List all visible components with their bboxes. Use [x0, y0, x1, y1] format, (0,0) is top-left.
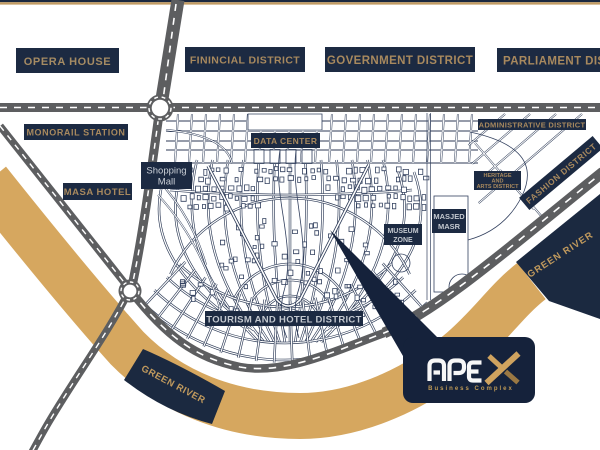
- svg-text:MASJED: MASJED: [433, 212, 465, 221]
- svg-text:Shopping: Shopping: [146, 166, 186, 177]
- svg-text:MONORAIL STATION: MONORAIL STATION: [26, 128, 125, 138]
- svg-text:FININCIAL DISTRICT: FININCIAL DISTRICT: [190, 55, 300, 67]
- svg-text:MUSEUM: MUSEUM: [387, 228, 418, 235]
- svg-text:ARTS DISTRICT: ARTS DISTRICT: [477, 184, 520, 190]
- svg-text:Mall: Mall: [158, 177, 175, 188]
- svg-text:GOVERNMENT DISTRICT: GOVERNMENT DISTRICT: [327, 55, 473, 67]
- svg-text:MASA HOTEL: MASA HOTEL: [64, 187, 131, 198]
- svg-text:DATA CENTER: DATA CENTER: [254, 136, 318, 146]
- svg-text:PARLIAMENT DISTRICT: PARLIAMENT DISTRICT: [503, 56, 600, 68]
- svg-text:Business Complex: Business Complex: [428, 386, 514, 392]
- svg-text:ZONE: ZONE: [393, 237, 413, 244]
- svg-text:MASR: MASR: [438, 222, 461, 231]
- svg-text:TOURISM AND HOTEL DISTRICT: TOURISM AND HOTEL DISTRICT: [206, 315, 361, 326]
- svg-text:OPERA HOUSE: OPERA HOUSE: [24, 56, 111, 68]
- svg-text:ADMINISTRATIVE DISTRICT: ADMINISTRATIVE DISTRICT: [479, 121, 586, 130]
